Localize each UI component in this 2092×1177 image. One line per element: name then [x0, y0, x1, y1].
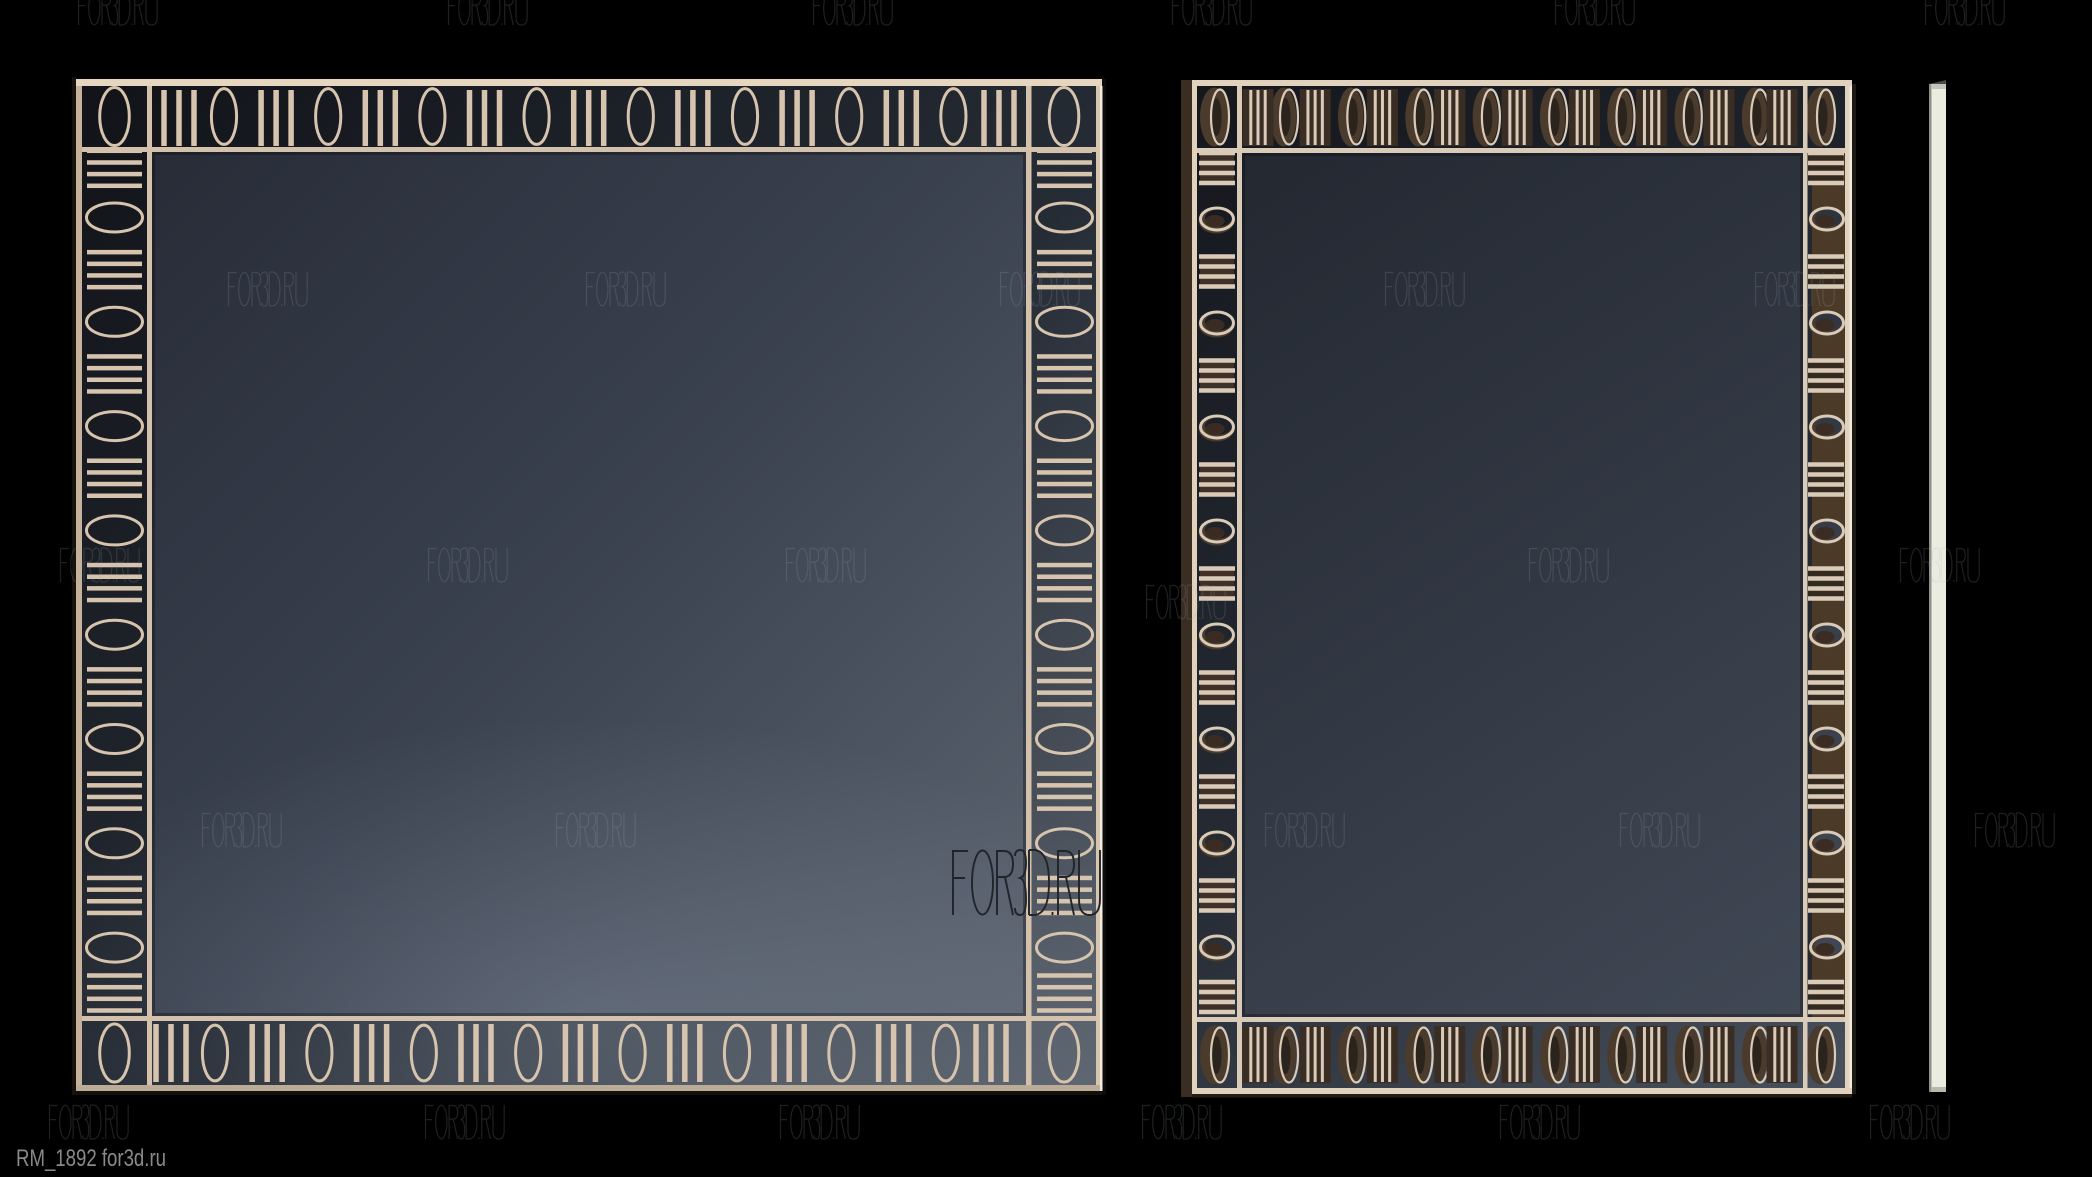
svg-text:RM_1892 for3d.ru: RM_1892 for3d.ru	[16, 1145, 166, 1172]
